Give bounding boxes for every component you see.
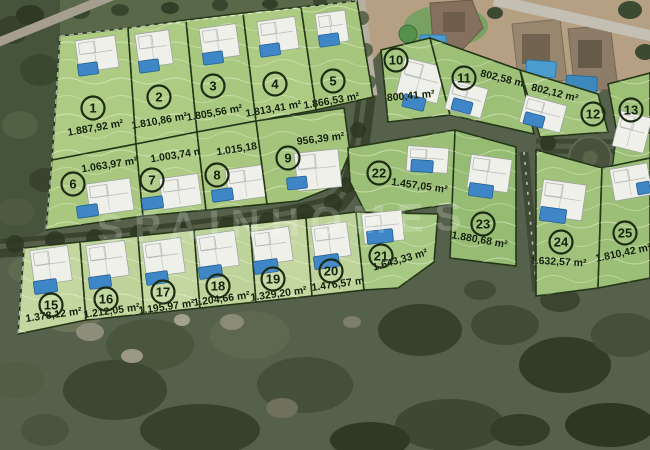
pool: [468, 182, 494, 198]
plot-number: 8: [213, 168, 220, 183]
plot-number: 25: [618, 226, 632, 241]
plot-number: 24: [554, 235, 569, 250]
pool: [77, 62, 98, 77]
plot-number: 18: [211, 279, 225, 294]
plot-1: 11.887,92 m²: [52, 28, 136, 160]
pool: [138, 59, 159, 74]
round-lawn: [399, 25, 417, 43]
plot-15: 151.378,12 m²: [18, 242, 86, 334]
plot-number: 13: [624, 103, 638, 118]
plot-number: 19: [266, 272, 280, 287]
pool: [411, 159, 434, 173]
pool: [318, 33, 339, 48]
pool: [286, 176, 307, 190]
plot-number: 1: [89, 101, 96, 116]
pool: [636, 181, 650, 195]
plot-number: 4: [271, 77, 279, 92]
pool: [33, 278, 58, 294]
plot-number: 22: [372, 166, 386, 181]
plot-number: 7: [148, 173, 155, 188]
plot-24: 241.632,57 m²: [530, 150, 602, 296]
plot-2: 21.810,86 m²: [128, 20, 197, 144]
plot-number: 12: [586, 107, 600, 122]
plot-25: 251.810,42 m²: [594, 158, 650, 288]
plot-number: 6: [69, 177, 76, 192]
plot-number: 9: [284, 151, 291, 166]
plot-number: 17: [156, 285, 170, 300]
plot-number: 11: [457, 71, 471, 86]
plot-number: 3: [209, 79, 216, 94]
site-plan-map: 11.887,92 m²21.810,86 m²31.805,56 m²41.8…: [0, 0, 650, 450]
plot-number: 23: [476, 217, 490, 232]
pool: [259, 43, 280, 58]
plot-number: 2: [155, 90, 162, 105]
plot-number: 5: [329, 74, 336, 89]
plot-number: 10: [389, 53, 403, 68]
plot-number: 20: [324, 264, 338, 279]
site-plan-image: 11.887,92 m²21.810,86 m²31.805,56 m²41.8…: [0, 0, 650, 450]
pool: [211, 188, 233, 203]
plot-contour-lines: [536, 150, 602, 296]
pool: [202, 51, 223, 66]
